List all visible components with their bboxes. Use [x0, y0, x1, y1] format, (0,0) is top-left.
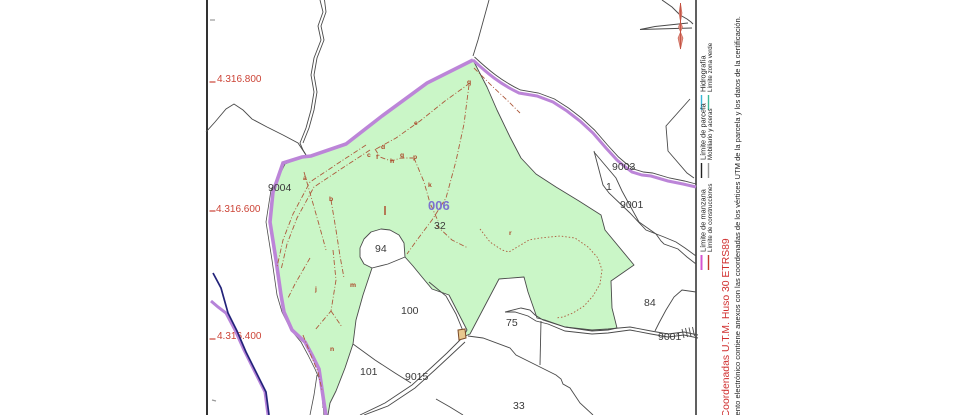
svg-text:4.316.800: 4.316.800	[217, 74, 262, 85]
svg-text:9015: 9015	[405, 371, 429, 383]
svg-text:d: d	[381, 144, 385, 151]
svg-text:b: b	[329, 196, 333, 203]
svg-text:100: 100	[401, 305, 419, 317]
svg-text:umento electrónico contiene an: umento electrónico contiene anexos con l…	[733, 16, 742, 415]
svg-text:1: 1	[606, 181, 612, 193]
svg-text:a: a	[303, 175, 307, 182]
svg-text:006: 006	[428, 198, 450, 213]
svg-text:0 Coordenadas U.T.M. Huso 30 E: 0 Coordenadas U.T.M. Huso 30 ETRS89	[721, 238, 732, 415]
svg-text:p: p	[413, 154, 417, 161]
svg-text:q: q	[467, 79, 471, 86]
svg-text:e: e	[414, 120, 418, 127]
svg-text:32: 32	[434, 220, 446, 232]
svg-text:g: g	[400, 152, 404, 159]
svg-text:101: 101	[360, 366, 378, 378]
svg-text:Límite zona verde: Límite zona verde	[707, 42, 714, 92]
svg-text:75: 75	[506, 317, 518, 329]
svg-text:c: c	[367, 152, 371, 159]
svg-text:9001: 9001	[658, 331, 682, 343]
svg-text:9001: 9001	[620, 199, 644, 211]
svg-text:m: m	[350, 282, 356, 289]
svg-text:j: j	[314, 286, 317, 293]
svg-text:33: 33	[513, 400, 525, 412]
svg-text:9003: 9003	[612, 161, 636, 173]
svg-text:4.316.600: 4.316.600	[216, 204, 261, 215]
svg-text:r: r	[509, 230, 512, 237]
svg-text:n: n	[330, 346, 334, 353]
svg-text:84: 84	[644, 297, 656, 309]
svg-text:h: h	[390, 158, 394, 165]
svg-text:9004: 9004	[268, 182, 292, 194]
svg-text:k: k	[428, 182, 432, 189]
svg-text:Mobiliario y aceras: Mobiliario y aceras	[707, 108, 714, 160]
svg-text:94: 94	[375, 243, 387, 255]
svg-text:Límite de construcciones: Límite de construcciones	[707, 184, 714, 252]
